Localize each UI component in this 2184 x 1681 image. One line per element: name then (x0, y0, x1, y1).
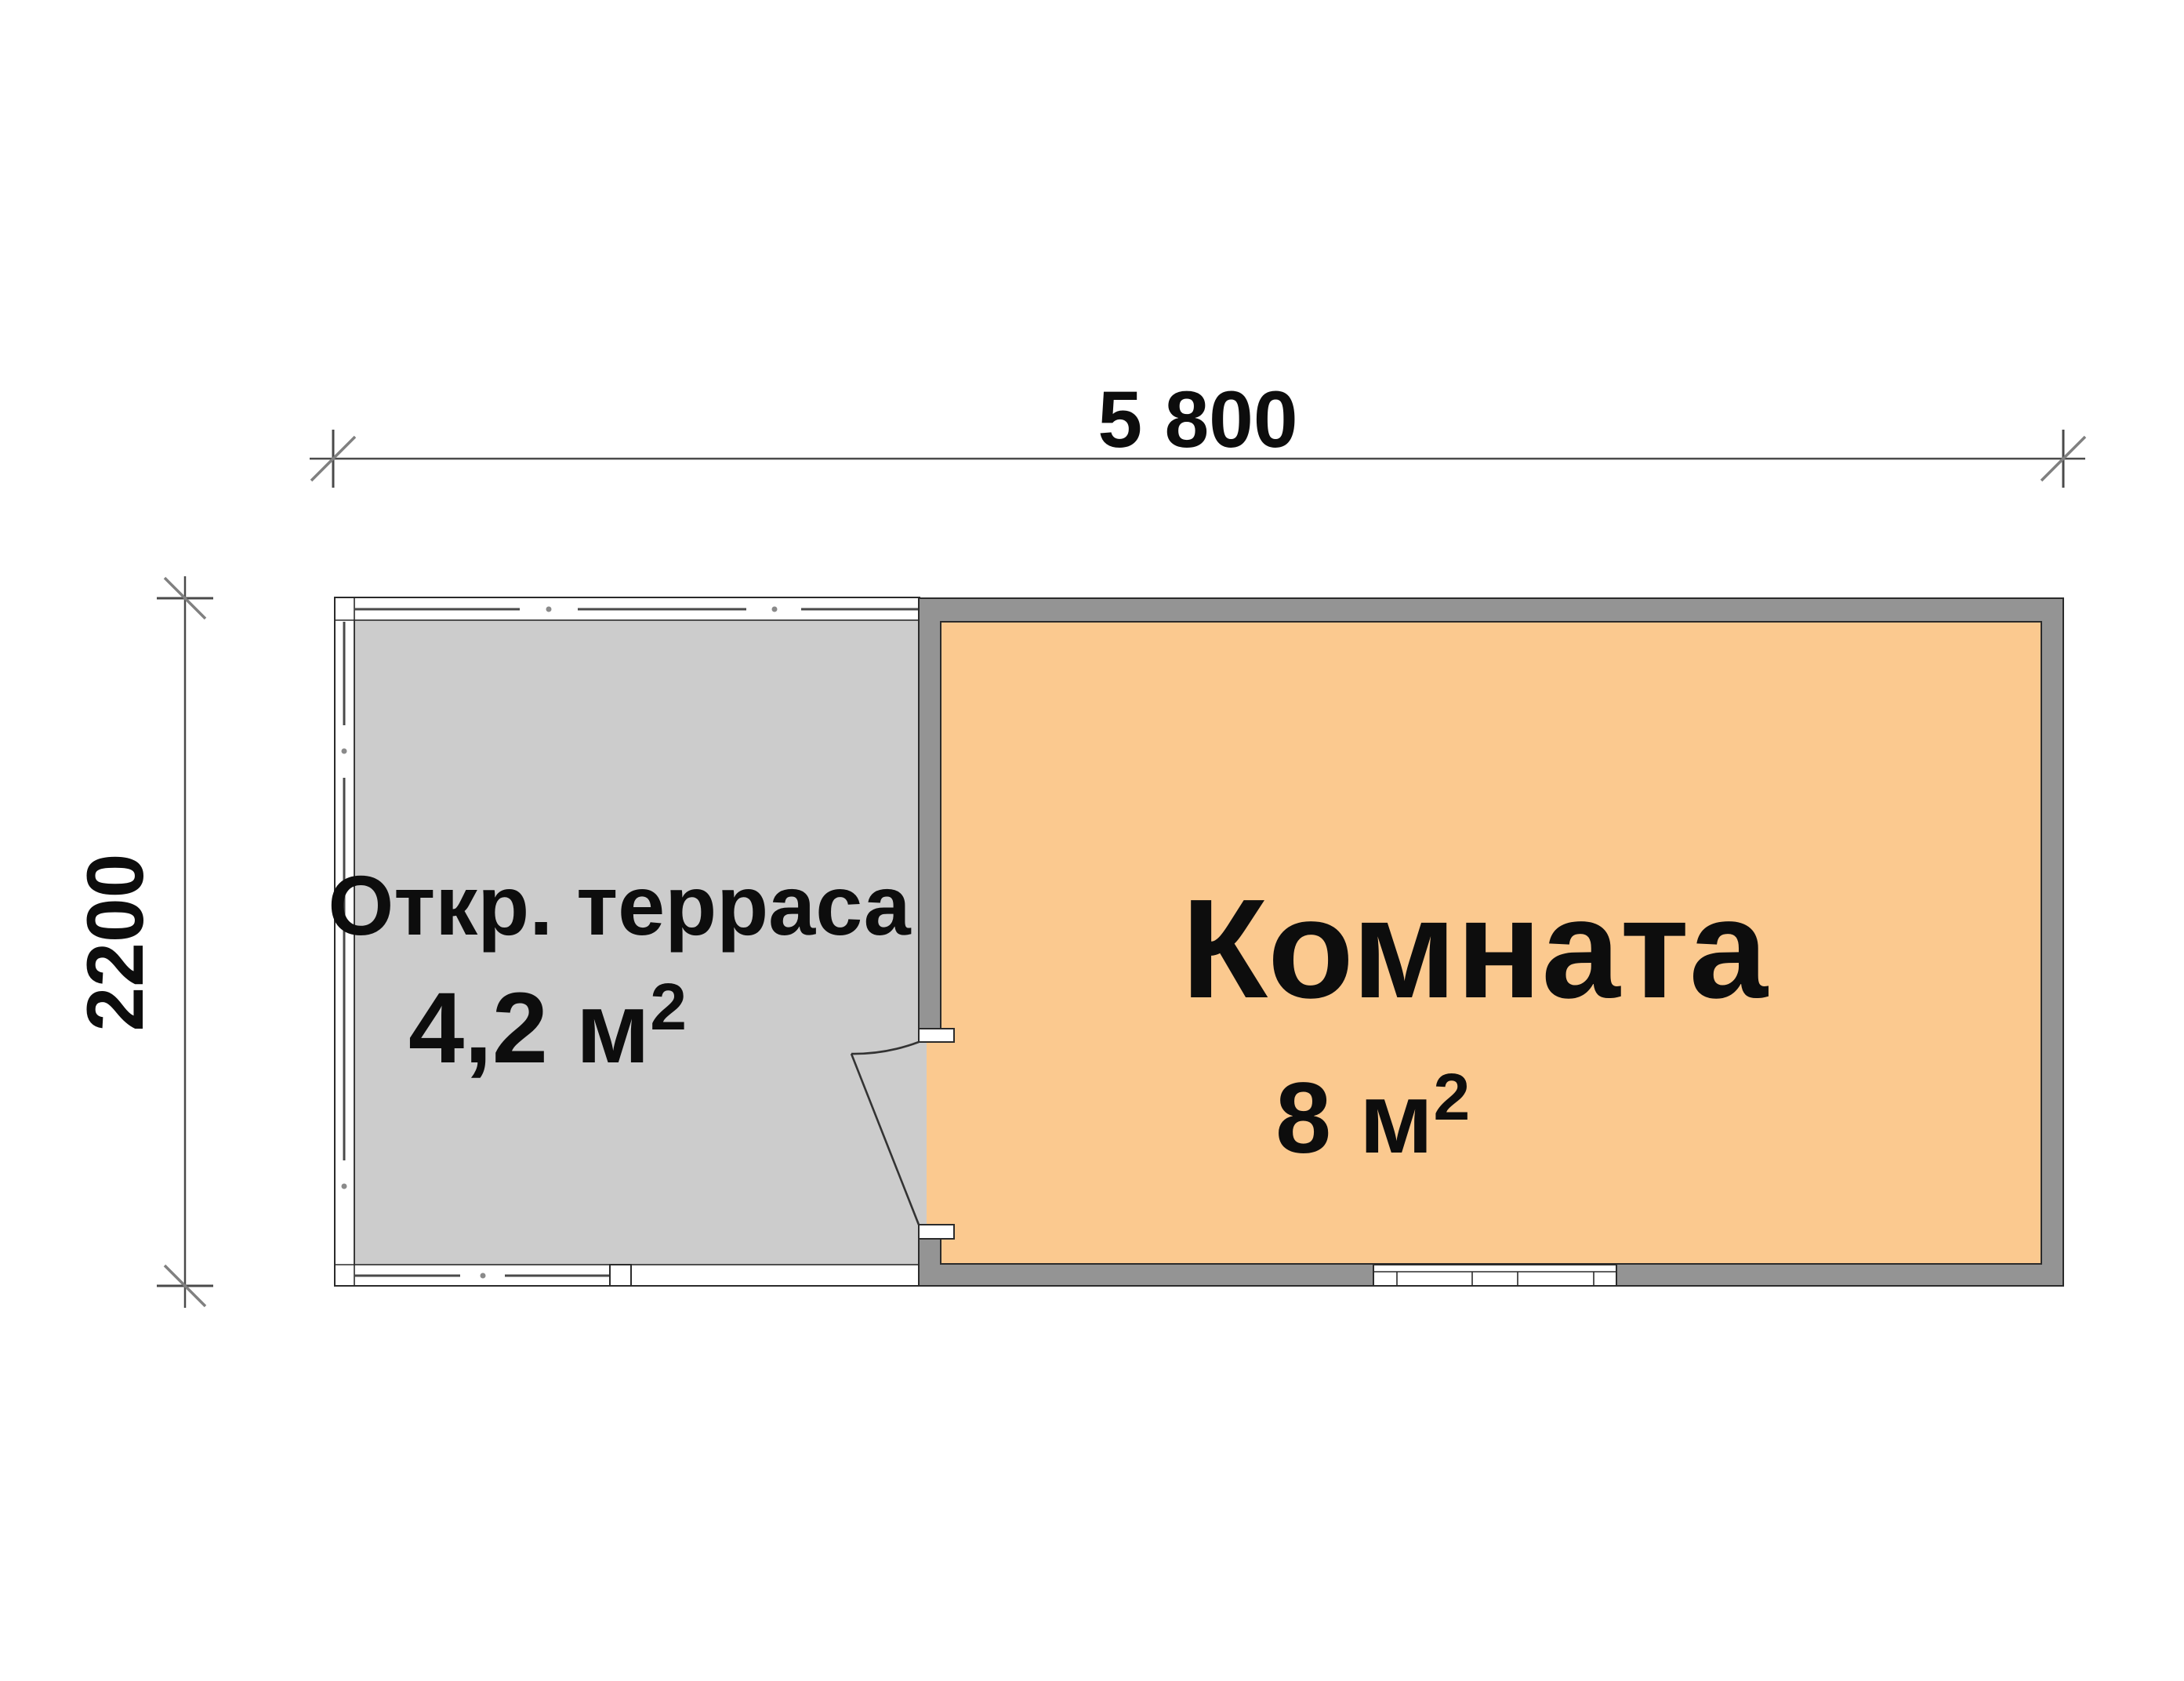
railing-baluster-dot (546, 607, 552, 612)
terrace-area-label: 4,2 м2 (408, 970, 687, 1084)
window-bottom (1373, 1265, 1616, 1286)
window-frame (1373, 1265, 1616, 1286)
terrace-area-value: 4,2 м (408, 972, 650, 1084)
room-area-value: 8 м (1275, 1062, 1433, 1175)
railing-baluster-dot (342, 749, 347, 754)
railing-baluster-dot (772, 607, 778, 612)
dimension-width-label: 5 800 (1097, 375, 1297, 464)
door-jamb-top (919, 1029, 954, 1042)
room-label: Комната (1181, 870, 1769, 1028)
floor-plan-page: 5 800 2200 (0, 0, 2184, 1681)
railing-baluster-dot (342, 1184, 347, 1189)
terrace-label: Откр. терраса (328, 858, 911, 953)
railing-post (610, 1265, 631, 1286)
floor-plan-canvas: 5 800 2200 (0, 0, 2184, 1681)
dimension-height-label: 2200 (71, 854, 160, 1032)
terrace-area-superscript: 2 (650, 970, 687, 1044)
room-area-superscript: 2 (1433, 1060, 1470, 1134)
railing-baluster-dot (481, 1273, 486, 1279)
door-jamb-bottom (919, 1225, 954, 1239)
door-opening-room-floor (927, 1043, 942, 1224)
door-opening-terrace-floor (918, 1043, 927, 1224)
